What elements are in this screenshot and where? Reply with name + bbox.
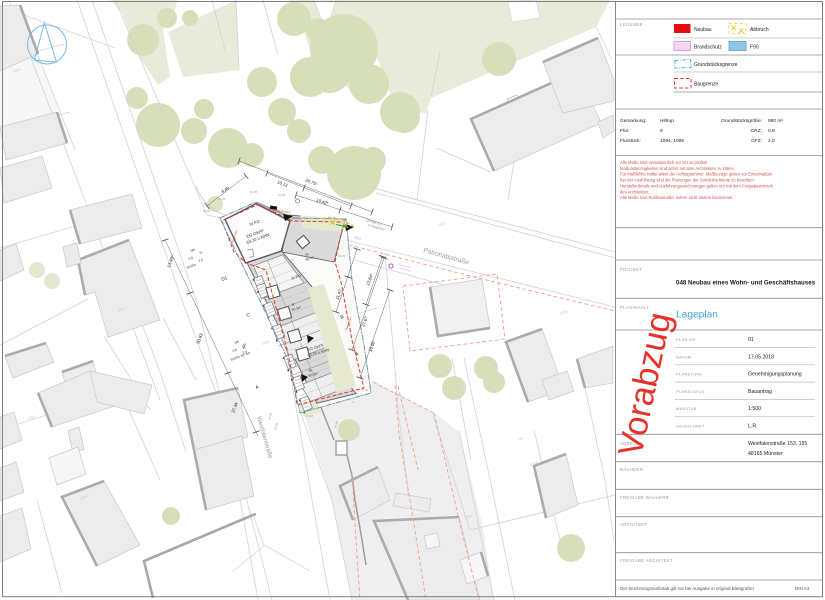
svg-text:PLAN-NR.: PLAN-NR.	[676, 337, 697, 342]
svg-text:L.R.: L.R.	[748, 424, 758, 430]
svg-text:DIN A3: DIN A3	[795, 586, 810, 591]
svg-text:1:500: 1:500	[748, 406, 761, 412]
svg-text:17.05.2018: 17.05.2018	[748, 354, 774, 360]
svg-text:PLANINHALT: PLANINHALT	[620, 305, 650, 310]
svg-text:Lageplan: Lageplan	[676, 310, 718, 321]
svg-text:64,35: 64,35	[278, 193, 285, 197]
svg-text:PLANSTUFE: PLANSTUFE	[676, 372, 702, 377]
svg-text:PROJEKT: PROJEKT	[620, 267, 642, 272]
svg-text:Grundstücksgröße:: Grundstücksgröße:	[721, 118, 762, 124]
svg-text:MAßSTAB: MAßSTAB	[676, 406, 697, 411]
svg-text:Gemarkung:: Gemarkung:	[620, 118, 646, 124]
svg-text:Bauantrag: Bauantrag	[748, 389, 772, 395]
svg-text:Flurstück:: Flurstück:	[620, 138, 641, 144]
svg-text:Hiltrup: Hiltrup	[660, 118, 674, 124]
svg-text:F90: F90	[750, 45, 759, 51]
svg-text:FREIGABE BAUHERR: FREIGABE BAUHERR	[620, 495, 669, 500]
svg-text:PLANSTATUS: PLANSTATUS	[676, 389, 705, 394]
svg-text:61,68: 61,68	[306, 414, 313, 418]
svg-text:61,46: 61,46	[361, 388, 368, 392]
svg-text:Maßunstimmigkeiten sind sofort: Maßunstimmigkeiten sind sofort mit dem A…	[620, 166, 735, 171]
svg-text:Herstellerdetails und Ausführu: Herstellerdetails und Ausführungszeichnu…	[620, 183, 774, 188]
svg-text:Für Maßfehler haftet allein de: Für Maßfehler haftet allein der Auftragn…	[620, 172, 774, 177]
svg-text:64,25: 64,25	[338, 254, 345, 258]
svg-text:1094, 1095: 1094, 1095	[660, 138, 684, 144]
svg-text:Der Zeichnungsmaßstab gilt nur: Der Zeichnungsmaßstab gilt nur bei Ausga…	[620, 586, 754, 591]
svg-text:GRZ:: GRZ:	[751, 128, 762, 134]
svg-text:01: 01	[748, 337, 754, 343]
svg-text:0,8: 0,8	[768, 128, 775, 134]
svg-text:2,0: 2,0	[768, 138, 775, 144]
svg-text:Brandschutz: Brandschutz	[694, 45, 722, 51]
svg-text:Flur:: Flur:	[620, 128, 630, 134]
svg-text:Neubau: Neubau	[694, 27, 712, 33]
svg-text:Grundstücksgrenze: Grundstücksgrenze	[694, 62, 738, 68]
svg-text:Baugrenze: Baugrenze	[694, 82, 718, 88]
svg-text:950 m²: 950 m²	[768, 118, 783, 124]
svg-text:Alle Maße sind verantwortlich: Alle Maße sind verantwortlich vor Ort zu…	[620, 160, 707, 165]
svg-text:Alle Maße sind Rohbaumaße, sof: Alle Maße sind Rohbaumaße, sofern nicht …	[620, 195, 733, 200]
svg-text:64,48: 64,48	[218, 197, 225, 201]
svg-text:Genehmigungsplanung: Genehmigungsplanung	[748, 372, 802, 378]
svg-text:64,38: 64,38	[250, 190, 257, 194]
svg-text:FREIGABE ARCHITEKT: FREIGABE ARCHITEKT	[620, 558, 673, 563]
svg-text:LEGENDE: LEGENDE	[620, 22, 643, 27]
svg-text:GEZEICHNET: GEZEICHNET	[676, 424, 705, 429]
svg-text:048 Neubau eines Wohn- und Ges: 048 Neubau eines Wohn- und Geschäftshaus…	[676, 280, 816, 287]
svg-text:Bei der Ausführung sind die Pl: Bei der Ausführung sind die Planungen de…	[620, 178, 755, 183]
svg-text:9: 9	[660, 128, 663, 134]
svg-text:Westfalenstraße 153, 155: Westfalenstraße 153, 155	[748, 441, 807, 447]
svg-text:des Architekten.: des Architekten.	[620, 189, 649, 194]
svg-text:BAUHERR: BAUHERR	[620, 467, 643, 472]
svg-text:DATUM: DATUM	[676, 354, 691, 359]
svg-text:48165 Münster: 48165 Münster	[748, 451, 783, 457]
svg-text:ARCHITEKT: ARCHITEKT	[620, 522, 647, 527]
svg-text:GFZ:: GFZ:	[751, 138, 762, 144]
svg-text:64,36: 64,36	[203, 209, 210, 213]
svg-text:Abbruch: Abbruch	[750, 27, 769, 33]
